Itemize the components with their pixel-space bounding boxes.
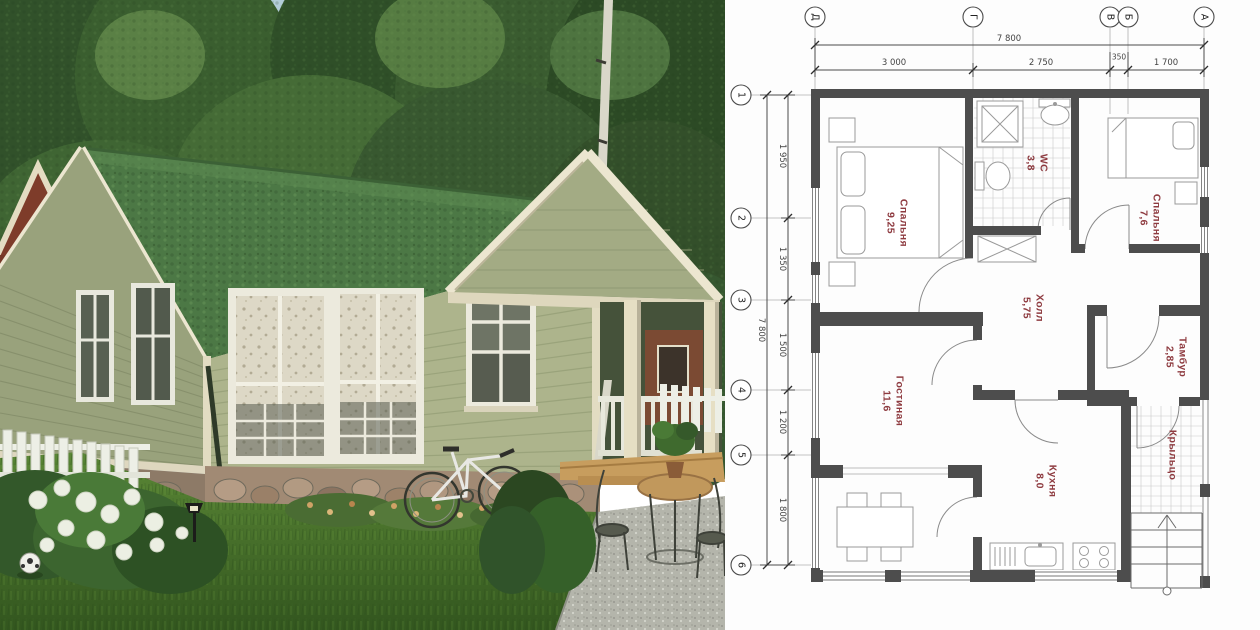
window-icon [811,353,820,438]
window-icon [901,570,970,582]
side-window-icon [131,283,175,405]
window-icon [811,478,820,568]
window-icon [811,275,820,303]
sink-icon [1039,99,1070,125]
dim-segment: 1 500 [777,333,787,357]
side-window-icon [76,290,114,402]
dim-segment: 1 700 [1154,58,1178,68]
nightstand-icon [829,118,855,142]
dim-segment: 1 350 [777,247,787,271]
wardrobe-icon [978,236,1036,262]
room-label-bedroom-1: Спальня9,25 [884,199,909,247]
dim-total-height: 7 800 [756,318,766,342]
room-label-vestibule: Тамбур2,85 [1163,337,1188,377]
room-label-wc: WC3,8 [1024,154,1049,172]
nightstand-icon [1175,182,1197,204]
dim-segment: 350 [1112,53,1126,62]
room-label-bedroom-2: Спальня7,6 [1137,194,1162,242]
axis-row-label: 5 [736,452,747,458]
axis-row-label: 6 [736,562,747,568]
window-icon [823,570,885,582]
nightstand-icon [829,262,855,286]
axis-column-label: Б [1123,14,1134,21]
dim-segment: 1 800 [777,498,787,522]
dim-segment: 1 200 [777,410,787,434]
window-icon [811,188,820,262]
exterior-wall-top [811,89,1209,98]
axis-column-label: Г [968,14,979,20]
stove-icon [1073,543,1115,570]
axis-row-label: 1 [736,92,747,98]
window-icon [1200,227,1209,253]
dim-segment: 3 000 [882,58,906,68]
axis-row-label: 2 [736,215,747,221]
photo-panel [0,0,725,630]
dim-total-width: 7 800 [997,34,1021,44]
kitchen-counter-icon [990,543,1063,570]
dim-segment: 1 950 [777,144,787,168]
room-label-kitchen: Кухня8,0 [1033,465,1058,498]
axis-column-label: Д [810,13,821,20]
porch-post-icon [624,300,641,470]
screenshot-root: Д Г В Б А 1 2 3 4 5 6 7 800 3 000 2 750 … [0,0,1260,630]
veranda-window-icon [236,296,324,456]
house-photo-render [0,0,725,630]
axis-column-label: В [1105,14,1116,21]
room-label-living-room: Гостиная11,6 [880,376,905,427]
toilet-icon [975,162,1010,190]
open-porch [592,300,722,480]
front-window-icon [464,294,538,412]
veranda-window-icon [340,294,416,454]
floor-plan-drawing [725,0,1260,630]
bed-icon [1108,118,1198,178]
dim-segment: 2 750 [1029,58,1053,68]
axis-row-label: 3 [736,297,747,303]
room-label-porch: Крыльцо [1166,430,1179,481]
axis-column-label: А [1199,14,1210,21]
shower-icon [977,101,1023,147]
veranda-windows [228,288,424,464]
room-label-hall: Холл5,75 [1020,294,1045,322]
axis-row-label: 4 [736,387,747,393]
window-icon [1200,167,1209,197]
window-icon [1035,570,1117,582]
floor-plan-panel: Д Г В Б А 1 2 3 4 5 6 7 800 3 000 2 750 … [725,0,1260,630]
